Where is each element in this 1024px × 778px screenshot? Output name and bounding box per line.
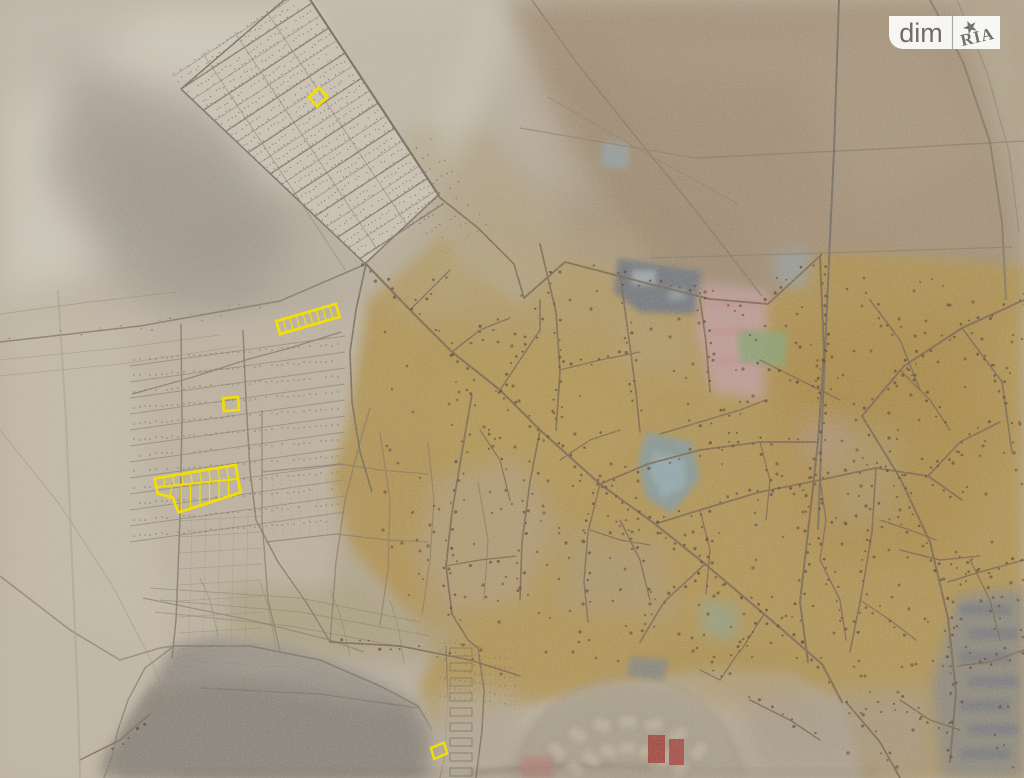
svg-text:dim: dim xyxy=(899,18,943,48)
